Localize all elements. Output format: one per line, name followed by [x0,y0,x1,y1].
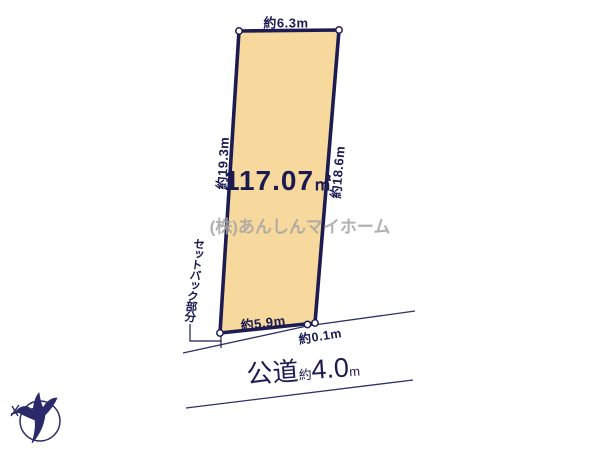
vertex-top-right [336,27,342,33]
road-approx: 約 [298,367,312,383]
bird-silhouette [16,393,57,443]
parcel-area-label: 117.07㎡ [224,165,332,197]
north-arrow-icon [11,393,60,443]
road-width-unit: m [349,364,361,380]
road-name: 公道 [245,356,299,390]
vertex-top-left [236,28,242,34]
road-label: 公道約4.0m [245,347,361,392]
watermark-text: (株)あんしんマイホーム [210,213,391,238]
road-width-value: 4.0 [310,352,350,385]
parcel-area-value: 117.07 [224,165,314,196]
vertex-bottom-left [217,330,223,336]
dimension-top-width: 約6.3m [263,13,308,32]
land-plot-diagram: (株)あんしんマイホーム 約6.3m 約19.3m 約18.6m 約5.9m 約… [0,0,600,449]
parcel-area-unit: ㎡ [314,175,332,194]
